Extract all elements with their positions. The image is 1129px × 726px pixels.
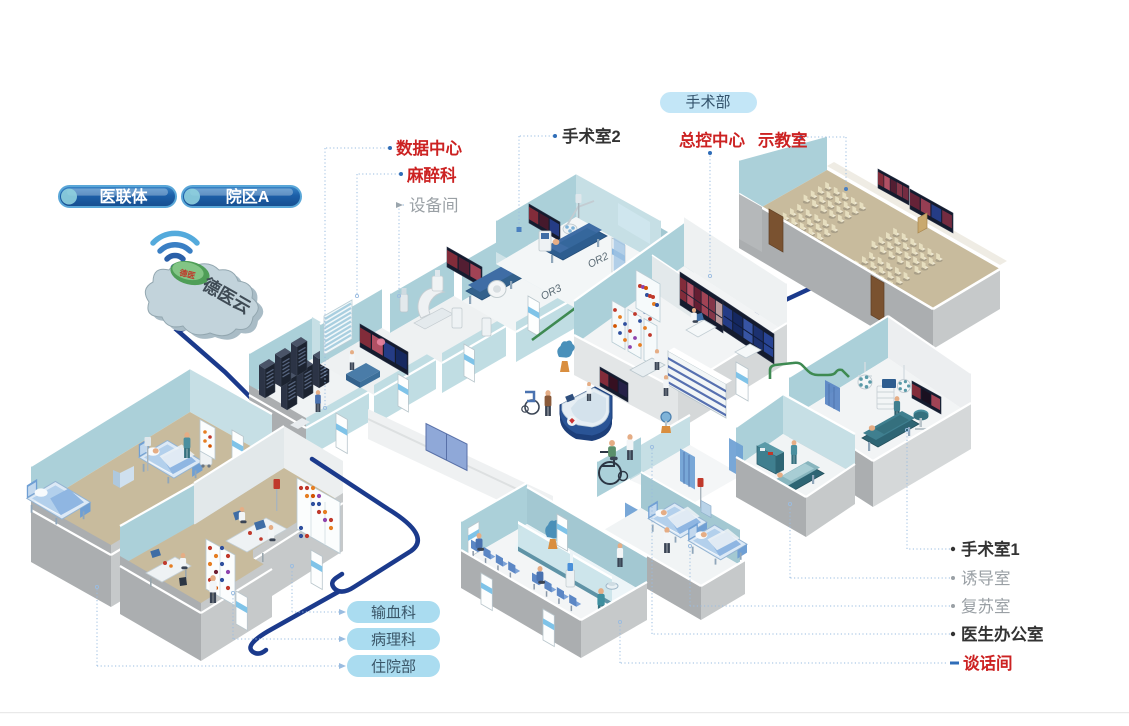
svg-text:院区A: 院区A — [226, 187, 270, 206]
svg-text:总控中心: 总控中心 — [679, 130, 746, 150]
svg-text:输血科: 输血科 — [371, 605, 416, 622]
svg-text:示教室: 示教室 — [758, 130, 808, 150]
svg-text:诱导室: 诱导室 — [961, 569, 1011, 588]
svg-text:数据中心: 数据中心 — [396, 138, 463, 158]
svg-text:医联体: 医联体 — [99, 187, 148, 206]
svg-text:手术室1: 手术室1 — [961, 539, 1020, 559]
svg-text:住院部: 住院部 — [371, 658, 416, 676]
svg-text:病理科: 病理科 — [371, 632, 416, 649]
svg-text:手术部: 手术部 — [685, 94, 730, 111]
svg-text:麻醉科: 麻醉科 — [406, 165, 457, 185]
svg-text:医生办公室: 医生办公室 — [961, 624, 1044, 644]
svg-text:谈话间: 谈话间 — [963, 653, 1013, 673]
svg-text:设备间: 设备间 — [409, 196, 459, 215]
svg-text:复苏室: 复苏室 — [961, 597, 1011, 616]
svg-text:手术室2: 手术室2 — [562, 126, 621, 146]
